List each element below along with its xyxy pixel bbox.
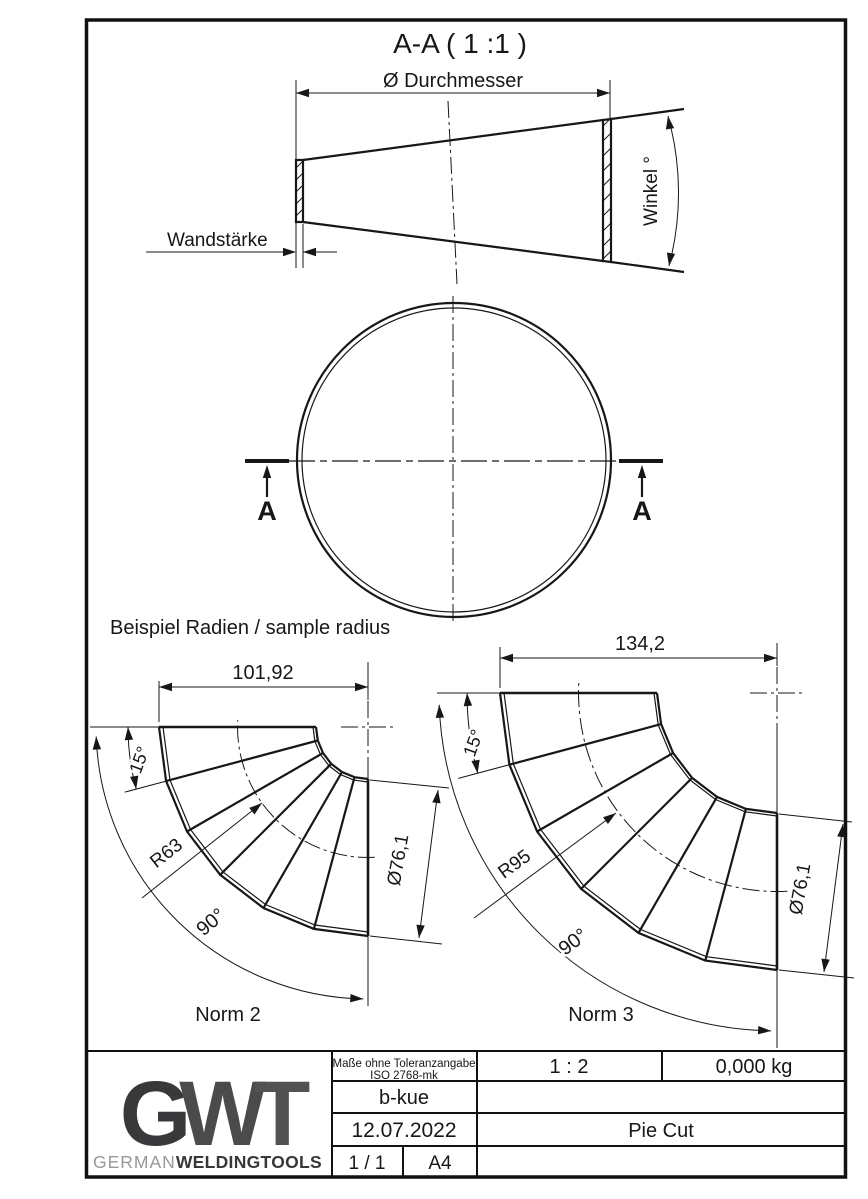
arrowhead <box>764 654 777 662</box>
norm2-width: 101,92 <box>232 662 293 684</box>
tolerance-note-line1: Maße ohne Toleranzangabe <box>332 1058 475 1070</box>
cone-axis-centerline <box>448 101 457 284</box>
company-logo: GWT GERMANWELDINGTOOLS <box>93 1063 322 1172</box>
arrowhead <box>432 789 442 803</box>
extension-line <box>779 814 852 822</box>
arrowhead <box>130 776 140 790</box>
arrowhead <box>350 994 363 1003</box>
angle-arc <box>668 116 679 266</box>
extension-line <box>370 780 449 788</box>
cone-top-edge <box>303 120 603 160</box>
arrowhead <box>665 253 675 267</box>
extension-line <box>370 936 442 944</box>
arrowhead <box>597 89 610 97</box>
pipe-inner-circle <box>302 308 606 612</box>
title-block: GWT GERMANWELDINGTOOLS Maße ohne Toleran… <box>86 1051 846 1177</box>
arrowhead <box>249 800 264 815</box>
arrowhead <box>664 115 674 129</box>
arrowhead <box>124 727 133 741</box>
date-value: 12.07.2022 <box>351 1119 456 1142</box>
norm3-segment-angle: 15° <box>459 727 487 759</box>
norm3-diameter: Ø76,1 <box>786 862 816 917</box>
author-value: b-kue <box>379 1087 429 1109</box>
front-view: A A <box>245 296 663 624</box>
tolerance-note-line2: ISO 2768-mk <box>370 1070 438 1082</box>
arrowhead <box>283 248 296 256</box>
part-name: Pie Cut <box>628 1120 694 1142</box>
arrowhead <box>820 959 830 973</box>
arrowhead <box>500 654 513 662</box>
logo-gwt: GWT <box>120 1063 310 1165</box>
norm3-width: 134,2 <box>615 633 665 655</box>
technical-drawing: A-A ( 1 :1 ) Ø Durchmesser <box>0 0 868 1199</box>
sample-radii-heading: Beispiel Radien / sample radius <box>110 617 390 639</box>
bend-angle-arc <box>439 705 771 1031</box>
arrowhead <box>638 465 646 478</box>
arrowhead <box>263 465 271 478</box>
logo-brand: GERMANWELDINGTOOLS <box>93 1152 322 1172</box>
norm2-segment-angle: 15° <box>125 744 153 776</box>
norm2-diameter: Ø76,1 <box>384 833 414 888</box>
pipe-outer-circle <box>297 303 611 617</box>
hatch-right <box>603 118 611 259</box>
arrowhead <box>303 248 316 256</box>
section-mark-right: A <box>632 496 652 526</box>
arrowhead <box>758 1026 771 1035</box>
joint-extension <box>125 781 167 792</box>
arrowhead <box>159 683 172 691</box>
cone-top-edge-ext <box>611 109 684 119</box>
angle-label: Winkel ° <box>641 156 662 226</box>
scale-value: 1 : 2 <box>550 1056 589 1078</box>
arrowhead <box>296 89 309 97</box>
arrowhead <box>92 736 101 749</box>
arrowhead <box>463 693 472 707</box>
section-title: A-A ( 1 :1 ) <box>393 28 527 59</box>
dimension-line <box>419 790 438 938</box>
diameter-label: Ø Durchmesser <box>383 70 523 92</box>
norm2-bend-angle: 90° <box>192 904 229 940</box>
norm2-label: Norm 2 <box>195 1004 261 1026</box>
sheet-value: 1 / 1 <box>349 1153 386 1174</box>
extension-line <box>779 970 854 978</box>
joint-extension <box>458 765 509 779</box>
arrowhead <box>471 760 481 774</box>
norm3-drawing: 134,2 15° 90° <box>435 633 854 1048</box>
bend-angle-arc <box>96 737 363 999</box>
arrowhead <box>355 683 368 691</box>
cone-bottom-edge <box>303 222 603 261</box>
arrowhead <box>415 925 425 939</box>
arrowhead <box>603 810 618 824</box>
format-value: A4 <box>428 1153 452 1174</box>
weight-value: 0,000 kg <box>716 1056 793 1078</box>
wall-thickness-label: Wandstärke <box>167 230 268 251</box>
norm2-drawing: 101,92 15° 90° <box>90 662 449 1026</box>
section-view-aa: A-A ( 1 :1 ) Ø Durchmesser <box>146 28 684 284</box>
arrowhead <box>435 705 444 718</box>
cone-bottom-edge-ext <box>611 262 684 272</box>
section-mark-left: A <box>257 496 277 526</box>
dimension-line <box>824 824 843 972</box>
norm3-bend-angle: 90° <box>555 924 592 960</box>
norm3-label: Norm 3 <box>568 1004 634 1026</box>
